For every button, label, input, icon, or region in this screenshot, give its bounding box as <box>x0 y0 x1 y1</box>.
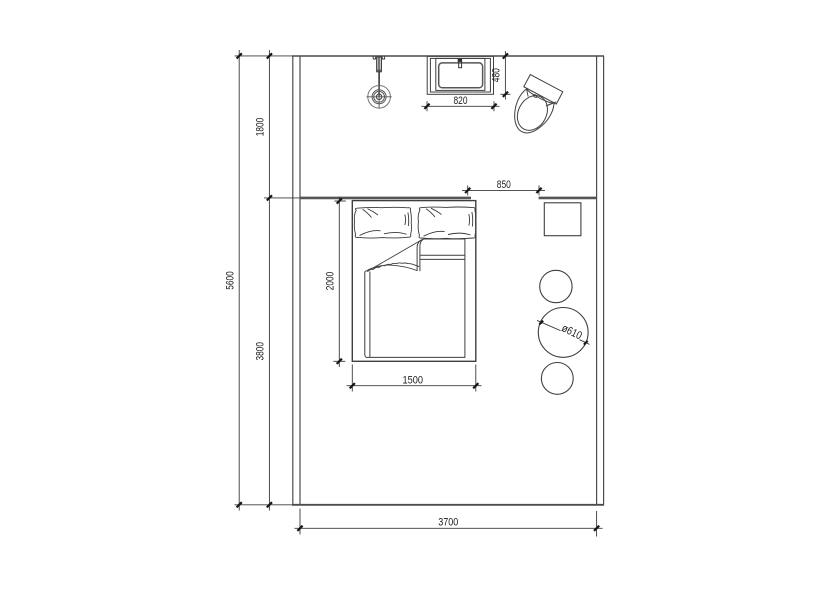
svg-text:3800: 3800 <box>255 342 267 361</box>
svg-text:5600: 5600 <box>225 271 237 290</box>
svg-text:1500: 1500 <box>403 374 424 386</box>
svg-text:2000: 2000 <box>325 272 337 291</box>
svg-text:480: 480 <box>491 68 503 82</box>
svg-text:3700: 3700 <box>438 517 458 529</box>
svg-text:850: 850 <box>497 179 511 191</box>
svg-text:1800: 1800 <box>255 118 267 137</box>
svg-text:820: 820 <box>454 95 468 107</box>
